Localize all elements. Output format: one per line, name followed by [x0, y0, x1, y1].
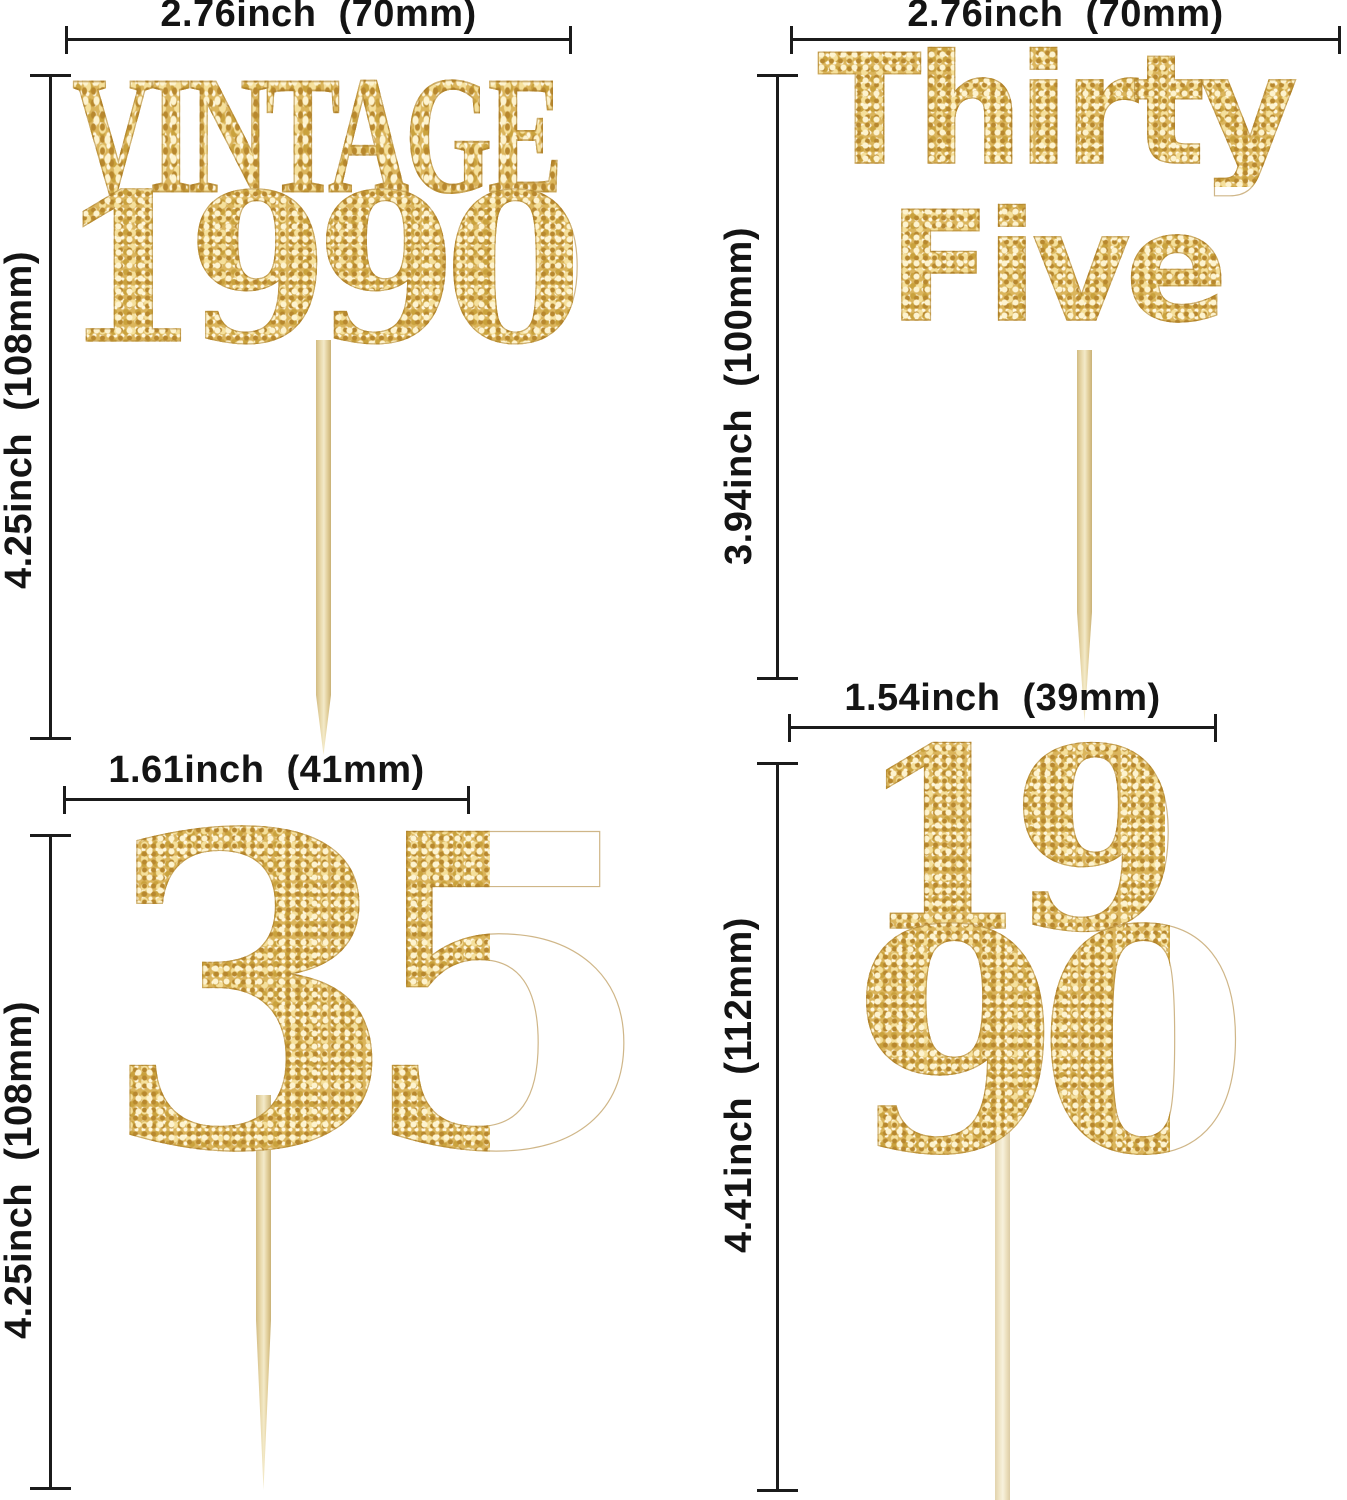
- width-dimension-line-35: [63, 798, 470, 801]
- topper-text-thirty: Thirty: [805, 35, 1305, 187]
- height-dimension-line-1990-stacked: [776, 762, 779, 1492]
- toothpick-thirty-five: [1077, 350, 1092, 722]
- topper-text-five: Five: [845, 192, 1265, 344]
- topper-text-35: 35: [100, 780, 490, 1210]
- product-dimension-photo: 2.76inch (70mm) 4.25inch (108mm) VINTAGE…: [0, 0, 1347, 1500]
- topper-text-1990: 1990: [58, 168, 573, 373]
- height-dimension-line-thirty-five: [776, 74, 779, 680]
- toothpick-vintage-1990: [316, 340, 331, 755]
- width-dimension-label-1990-stacked: 1.54inch (39mm): [788, 676, 1217, 722]
- height-dimension-label-1990-stacked: 4.41inch (112mm): [717, 917, 763, 1253]
- width-dimension-label-35: 1.61inch (41mm): [63, 748, 470, 794]
- width-dimension-line-1990-stacked: [788, 726, 1217, 729]
- height-dimension-label-35: 4.25inch (108mm): [0, 1001, 43, 1339]
- height-dimension-label-vintage-1990: 4.25inch (108mm): [0, 251, 43, 589]
- width-dimension-line-thirty-five: [790, 38, 1341, 41]
- width-dimension-label-vintage-1990: 2.76inch (70mm): [65, 0, 572, 38]
- height-dimension-line-35: [49, 834, 52, 1490]
- height-dimension-label-thirty-five: 3.94inch (100mm): [717, 227, 763, 565]
- width-dimension-line-vintage-1990: [65, 38, 572, 41]
- height-dimension-line-vintage-1990: [49, 74, 52, 740]
- width-dimension-label-thirty-five: 2.76inch (70mm): [790, 0, 1341, 38]
- topper-text-90: 90: [850, 891, 1170, 1197]
